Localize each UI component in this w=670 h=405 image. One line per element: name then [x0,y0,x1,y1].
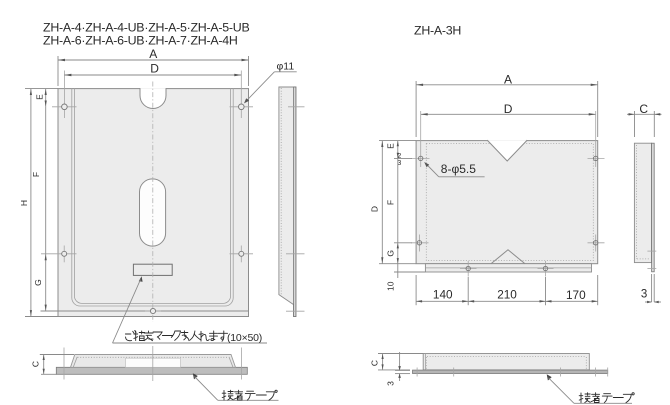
svg-text:(10×50): (10×50) [227,332,262,344]
svg-text:C: C [370,360,380,366]
svg-text:C: C [639,102,648,116]
svg-text:F: F [386,200,396,205]
svg-text:170: 170 [566,288,586,302]
svg-text:E: E [35,94,45,100]
svg-text:H: H [19,200,29,206]
svg-text:ZH-A-6·ZH-A-6-UB·ZH-A-7·ZH-A-4: ZH-A-6·ZH-A-6-UB·ZH-A-7·ZH-A-4H [43,34,238,48]
svg-text:C: C [31,361,41,367]
svg-text:G: G [386,250,396,257]
svg-text:A: A [149,47,157,61]
svg-text:140: 140 [433,287,453,301]
svg-text:D: D [504,102,513,116]
svg-text:F: F [31,172,41,177]
svg-text:ZH-A-4·ZH-A-4-UB·ZH-A-5·ZH-A-5: ZH-A-4·ZH-A-4-UB·ZH-A-5·ZH-A-5-UB [43,21,250,35]
svg-text:D: D [370,206,380,212]
svg-text:E: E [386,143,396,149]
svg-text:10: 10 [386,281,396,291]
svg-text:A: A [504,73,512,87]
svg-text:3: 3 [641,289,647,301]
svg-text:G: G [33,279,43,286]
svg-text:D: D [150,62,159,76]
svg-text:φ11: φ11 [277,60,295,72]
svg-text:ZH-A-3H: ZH-A-3H [414,23,461,37]
svg-text:8-φ5.5: 8-φ5.5 [441,162,476,176]
svg-text:3: 3 [386,381,396,386]
svg-text:210: 210 [497,287,517,301]
